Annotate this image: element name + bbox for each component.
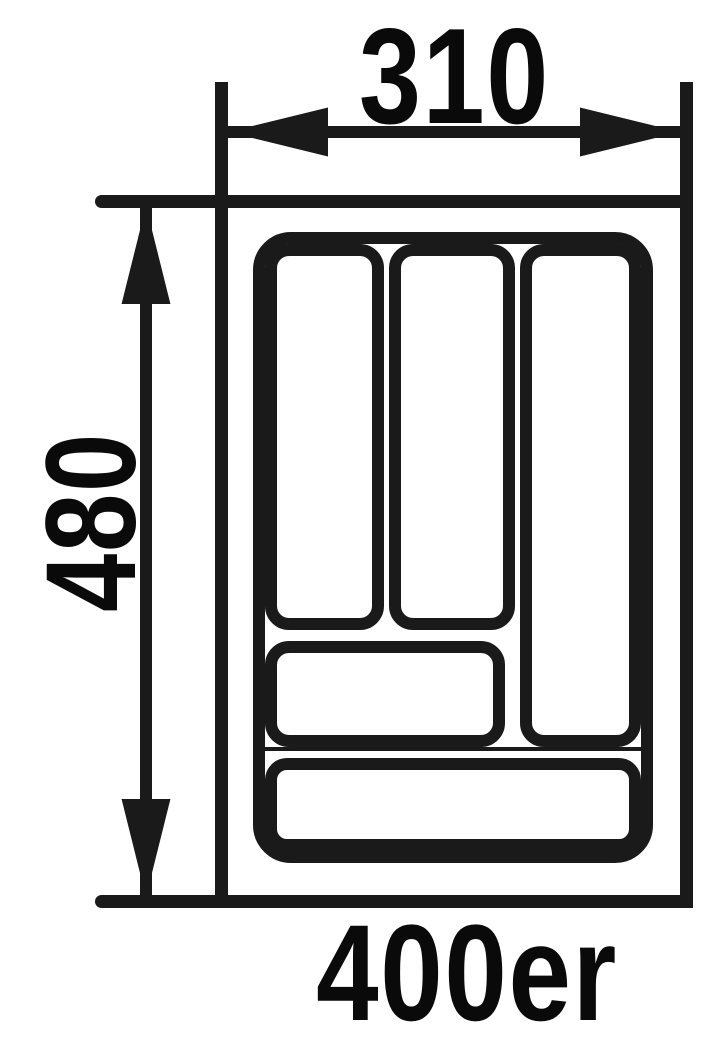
- compartment-bottom: [265, 758, 641, 851]
- dimension-drawing: 310 480 400er: [0, 0, 705, 1048]
- drawer-edge-top: [95, 195, 693, 208]
- tray-divider-line: [262, 747, 644, 751]
- compartment-middle: [265, 641, 505, 747]
- width-arrow-left-icon: [228, 106, 328, 158]
- height-arrow-up-icon: [120, 206, 172, 304]
- compartment-top-middle: [389, 244, 515, 630]
- width-arrow-right-icon: [580, 106, 680, 158]
- compartment-right: [520, 244, 641, 747]
- height-arrow-down-icon: [120, 799, 172, 897]
- compartment-top-left: [265, 244, 384, 630]
